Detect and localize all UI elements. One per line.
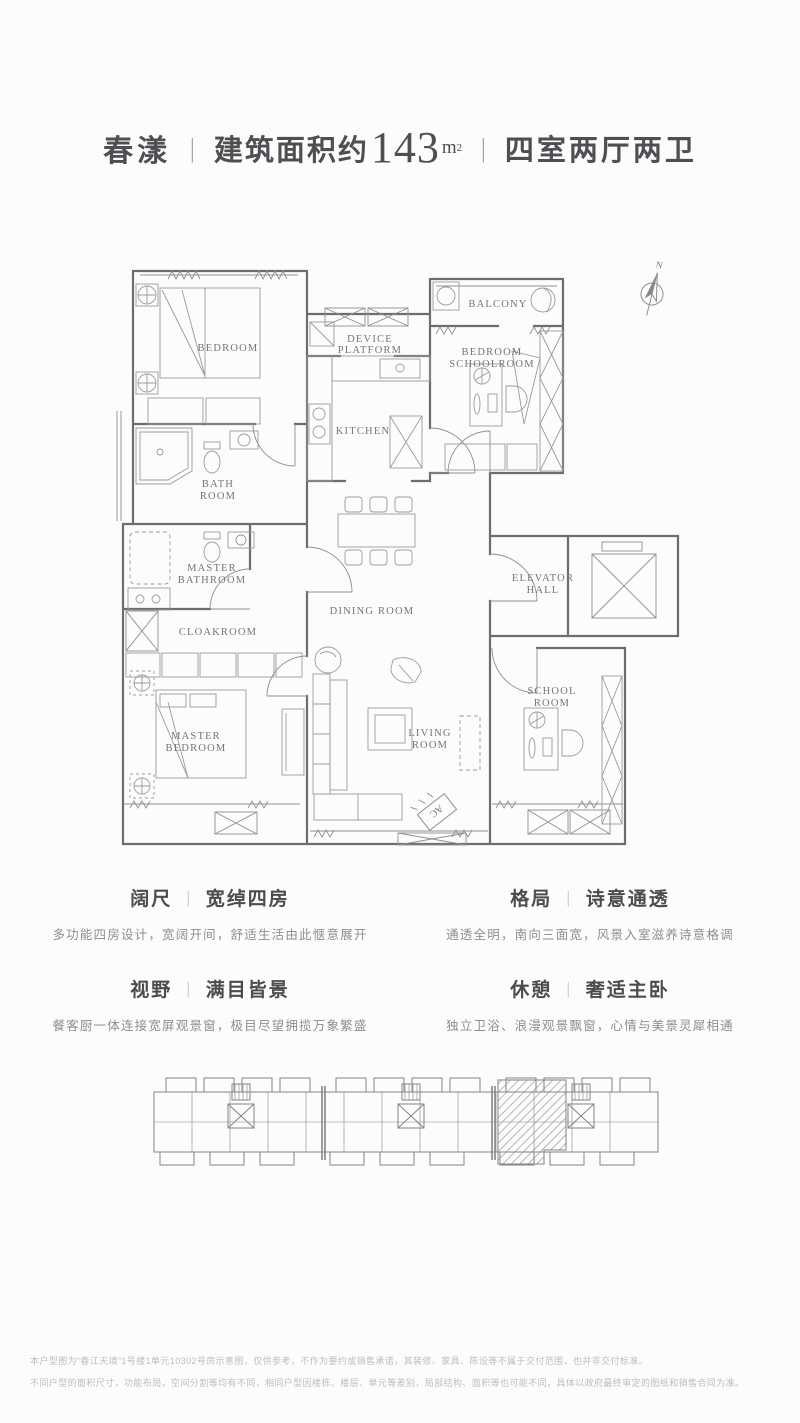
label-cloakroom: CLOAKROOM [179, 627, 257, 638]
elevator-shaft [592, 542, 656, 618]
feature-title: 视野 | 满目皆景 [20, 975, 400, 1002]
label-living-room: LIVING [408, 728, 451, 739]
area-label: 建筑面积约 [214, 127, 369, 169]
feature-category: 阔尺 [130, 884, 172, 911]
label-bedroom: BEDROOM [198, 343, 259, 354]
feature-theme: 诗意通透 [586, 884, 670, 911]
feature-theme: 奢适主卧 [586, 975, 670, 1002]
feature-category: 休憩 [510, 975, 552, 1002]
label-school-room: SCHOOL [527, 686, 576, 697]
label-master-bathroom: BATHROOM [178, 575, 247, 586]
feature-category: 格局 [510, 884, 552, 911]
disclaimer: 本户型图为“春江天境”1号楼1单元10302号房示意图，仅供参考，不作为要约或销… [30, 1350, 770, 1394]
label-balcony: BALCONY [468, 299, 527, 310]
label-elevator-hall: HALL [527, 585, 560, 596]
divider-bar: | [191, 133, 195, 164]
label-master-bedroom: BEDROOM [166, 743, 227, 754]
area-value: 143 [371, 126, 440, 170]
divider-bar: | [187, 979, 190, 999]
feature-category: 视野 [130, 975, 172, 1002]
layout-spec: 四室两厅两卫 [505, 127, 697, 169]
feature-item: 视野 | 满目皆景 餐客厨一体连接宽屏观景窗，极目尽望拥揽万象繁盛 [20, 975, 400, 1034]
disclaimer-line-2: 不同户型的面积尺寸，功能布局，空间分割等均有不同，相同户型因楼栋、楼层、单元等差… [30, 1372, 770, 1394]
feature-description: 多功能四房设计，宽阔开间，舒适生活由此惬意展开 [20, 924, 400, 943]
label-master-bedroom: MASTER [171, 731, 221, 742]
stair-core [228, 1084, 254, 1128]
label-master-bathroom: MASTER [187, 563, 237, 574]
feature-title: 阔尺 | 宽绰四房 [20, 884, 400, 911]
windows-and-doors [117, 271, 656, 845]
feature-description: 餐客厨一体连接宽屏观景窗，极目尽望拥揽万象繁盛 [20, 1015, 400, 1034]
label-bath-room: ROOM [200, 491, 236, 502]
feature-title: 格局 | 诗意通透 [400, 884, 780, 911]
label-dining-room: DINING ROOM [330, 606, 415, 617]
walls [123, 271, 678, 844]
label-school-room: ROOM [534, 698, 570, 709]
divider-bar: | [482, 133, 486, 164]
ac-unit: AC [410, 785, 457, 831]
feature-description: 通透全明，南向三面宽，风景入室滋养诗意格调 [400, 924, 780, 943]
divider-bar: | [567, 888, 570, 908]
label-elevator-hall: ELEVATOR [512, 573, 574, 584]
label-living-room: ROOM [412, 740, 448, 751]
feature-theme: 满目皆景 [206, 975, 290, 1002]
page-title: 春漾 | 建筑面积约 143 m 2 | 四室两厅两卫 [0, 120, 800, 176]
disclaimer-line-1: 本户型图为“春江天境”1号楼1单元10302号房示意图，仅供参考，不作为要约或销… [30, 1350, 770, 1372]
area-unit: m [442, 137, 457, 159]
project-name: 春漾 [103, 126, 171, 170]
feature-theme: 宽绰四房 [206, 884, 290, 911]
compass-icon: N [636, 257, 671, 318]
floorplan-drawing: AC N BEDROOM DEVICE PLATFORM BALCONY BED… [100, 256, 700, 868]
label-device-platform: PLATFORM [338, 345, 402, 356]
label-bedroom-schoolroom: BEDROOM [462, 347, 523, 358]
feature-item: 休憩 | 奢适主卧 独立卫浴、浪漫观景飘窗，心情与美景灵犀相通 [400, 975, 780, 1034]
divider-bar: | [187, 888, 190, 908]
feature-title: 休憩 | 奢适主卧 [400, 975, 780, 1002]
feature-item: 阔尺 | 宽绰四房 多功能四房设计，宽阔开间，舒适生活由此惬意展开 [20, 884, 400, 943]
label-bedroom-schoolroom: SCHOOLROOM [449, 359, 535, 370]
label-device-platform: DEVICE [347, 334, 393, 345]
compass-label: N [655, 259, 664, 270]
building-keyplan [146, 1062, 666, 1180]
feature-section: 阔尺 | 宽绰四房 多功能四房设计，宽阔开间，舒适生活由此惬意展开 格局 | 诗… [0, 884, 800, 1066]
label-kitchen: KITCHEN [336, 426, 390, 437]
divider-bar: | [567, 979, 570, 999]
feature-description: 独立卫浴、浪漫观景飘窗，心情与美景灵犀相通 [400, 1015, 780, 1034]
label-bath-room: BATH [202, 479, 234, 490]
room-labels: BEDROOM DEVICE PLATFORM BALCONY BEDROOM … [166, 299, 577, 754]
feature-item: 格局 | 诗意通透 通透全明，南向三面宽，风景入室滋养诗意格调 [400, 884, 780, 943]
area-unit-sup: 2 [457, 142, 463, 154]
